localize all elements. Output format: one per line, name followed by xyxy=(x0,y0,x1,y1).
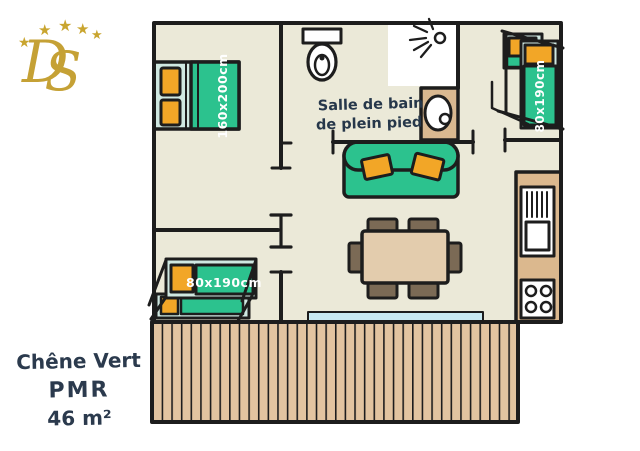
cushion xyxy=(361,154,393,179)
kitchen-sink xyxy=(521,187,554,256)
bunk-right-size-label: 80x190cm xyxy=(533,59,547,132)
svg-text:Salle de bain: Salle de bain xyxy=(318,96,424,115)
double-bed: 160x200cm xyxy=(154,53,239,138)
dining-chair xyxy=(409,283,438,298)
dining-table xyxy=(362,231,448,283)
floor-plan: 160x200cm 80x190cm 80x190cm xyxy=(0,0,640,451)
terrace-deck xyxy=(152,322,518,422)
pillow xyxy=(161,68,180,95)
dining-chair xyxy=(368,283,397,298)
washbasin xyxy=(421,88,458,140)
double-bed-size-label: 160x200cm xyxy=(215,53,230,138)
kitchen xyxy=(516,172,561,322)
shower xyxy=(388,19,458,86)
kitchen-hob xyxy=(521,280,554,318)
bunk-left-size-label: 80x190cm xyxy=(186,275,262,290)
sofa xyxy=(344,142,458,197)
bunk-bed-bottom-left: 80x190cm xyxy=(149,259,262,321)
pillow xyxy=(161,100,180,125)
svg-text:de plein pied: de plein pied xyxy=(316,115,423,134)
